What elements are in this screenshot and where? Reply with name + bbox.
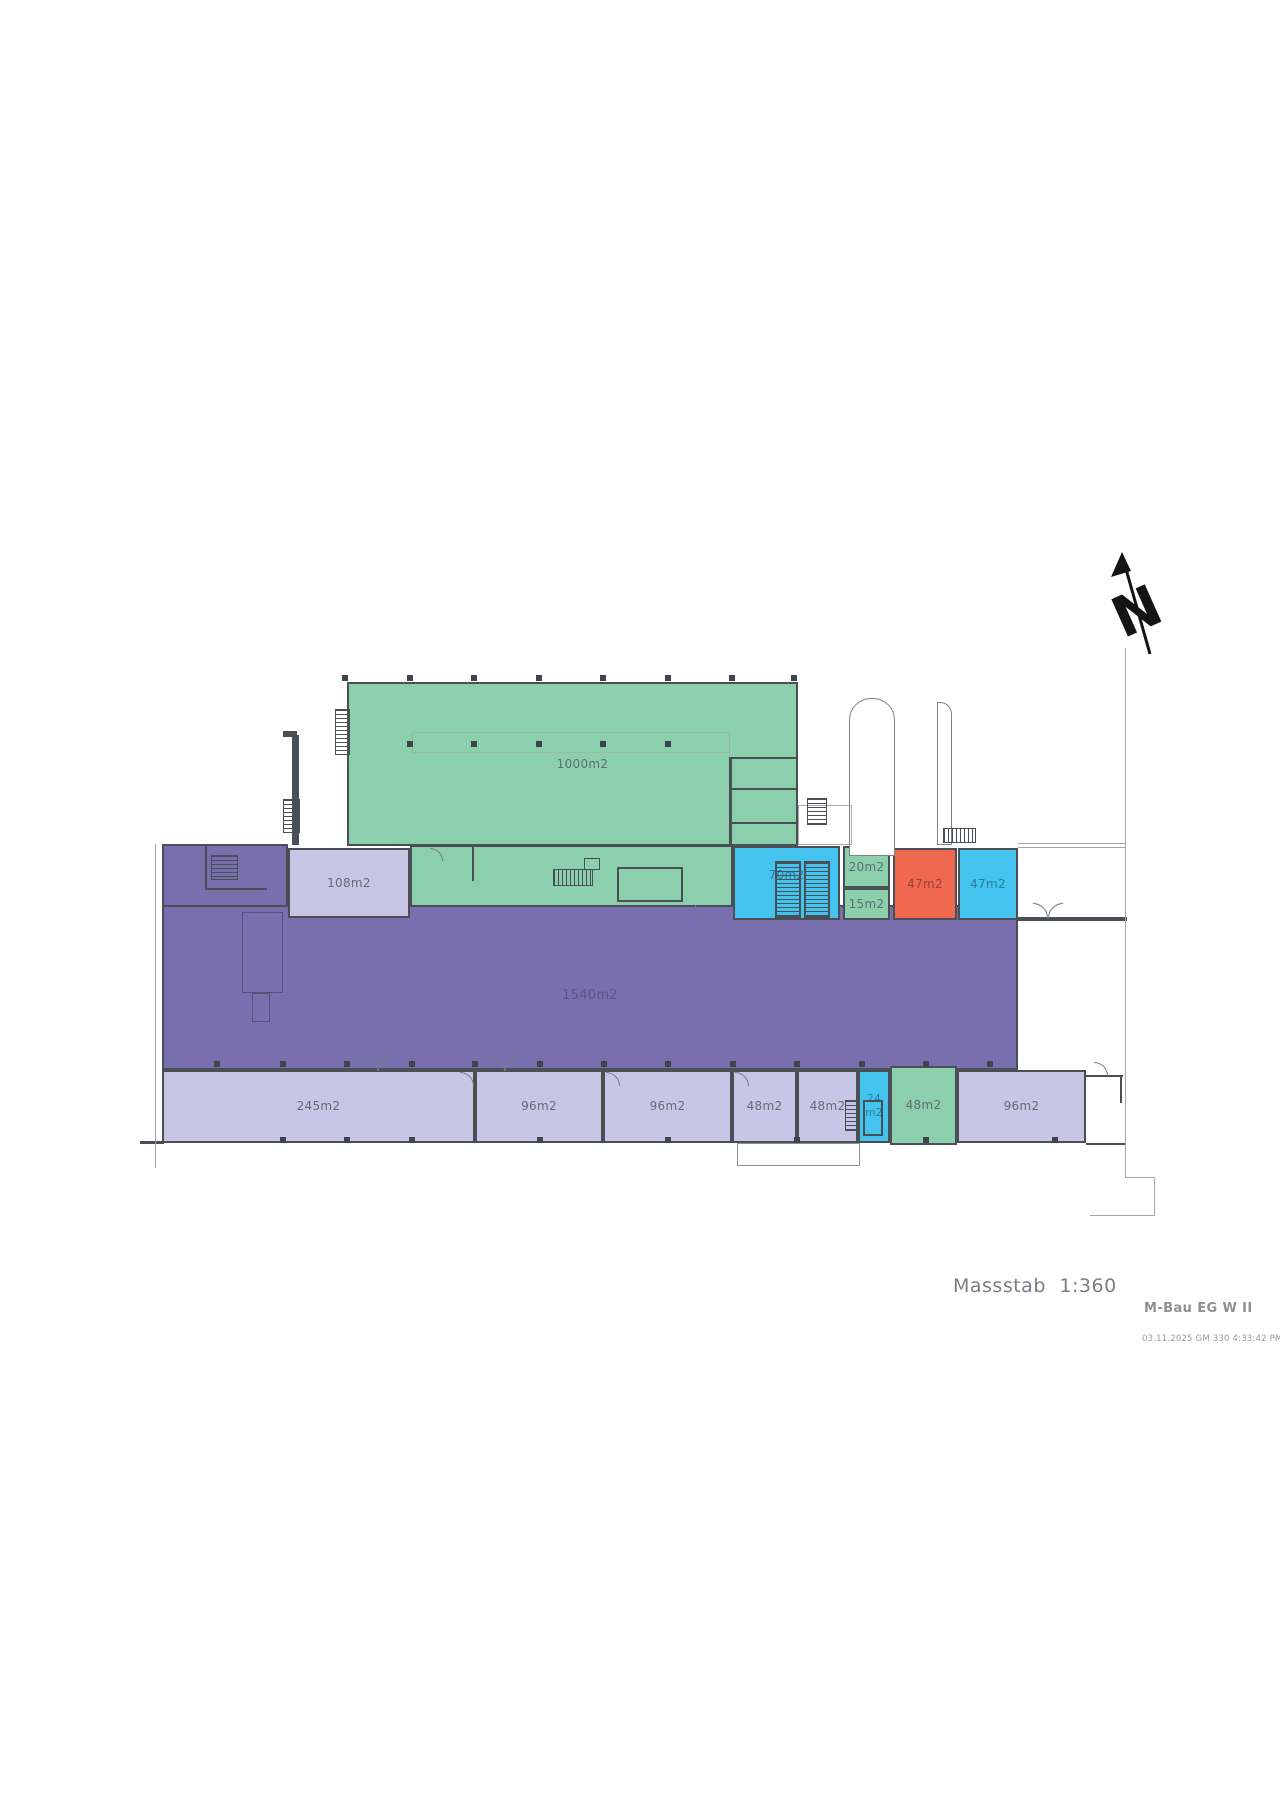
column-dot-0-4 — [600, 675, 606, 681]
scale-label: Massstab 1:360 — [953, 1275, 1117, 1297]
room-48m2-c-label: 48m2 — [906, 1098, 942, 1113]
column-dot-0-5 — [665, 675, 671, 681]
room-96m2-c-label: 96m2 — [1004, 1099, 1040, 1114]
outline-box-1 — [617, 867, 683, 902]
room-96m2-a-label: 96m2 — [521, 1099, 557, 1114]
column-dot-1-0 — [407, 741, 413, 747]
room-47m2-b: 47m2 — [958, 848, 1018, 920]
room-48m2-a-label: 48m2 — [747, 1099, 783, 1114]
thin-line-1 — [1125, 648, 1126, 1177]
wall-segment-10 — [205, 844, 207, 890]
column-dot-0-2 — [471, 675, 477, 681]
stairs-icon-3 — [804, 861, 830, 918]
thin-line-2 — [1125, 1177, 1155, 1178]
outline-box-7 — [252, 993, 270, 1022]
column-dot-1-4 — [665, 741, 671, 747]
stairs-icon-6 — [211, 855, 238, 880]
stairs-icon-4 — [807, 798, 827, 825]
column-dot-3-6 — [923, 1137, 929, 1143]
column-dot-1-3 — [600, 741, 606, 747]
room-48m2-b-label: 48m2 — [810, 1099, 846, 1114]
thin-line-4 — [1090, 1215, 1155, 1216]
outline-box-0 — [412, 732, 730, 753]
door-arc-5 — [1048, 903, 1063, 918]
room-96m2-a: 96m2 — [475, 1070, 603, 1143]
column-dot-1-1 — [471, 741, 477, 747]
room-47m2-a-label: 47m2 — [907, 877, 943, 892]
column-dot-2-7 — [665, 1061, 671, 1067]
column-dot-2-2 — [344, 1061, 350, 1067]
column-dot-2-8 — [730, 1061, 736, 1067]
column-dot-3-2 — [409, 1137, 415, 1143]
wall-segment-13 — [1086, 1143, 1125, 1145]
column-dot-2-0 — [214, 1061, 220, 1067]
room-108m2-label: 108m2 — [327, 876, 371, 891]
stairs-icon-1 — [335, 709, 350, 755]
room-15m2: 15m2 — [843, 888, 890, 920]
hall-1540m2: 1540m2 — [162, 905, 1018, 1070]
column-dot-0-3 — [536, 675, 542, 681]
outline-box-4 — [937, 702, 952, 845]
room-96m2-b-label: 96m2 — [650, 1099, 686, 1114]
stairs-icon-8 — [553, 869, 593, 886]
column-dot-2-3 — [409, 1061, 415, 1067]
column-dot-0-1 — [407, 675, 413, 681]
outline-box-6 — [242, 912, 283, 993]
room-245m2-label: 245m2 — [297, 1099, 341, 1114]
column-dot-2-6 — [601, 1061, 607, 1067]
outline-box-8 — [863, 1100, 883, 1136]
door-arc-4 — [1033, 903, 1048, 918]
room-245m2: 245m2 — [162, 1070, 475, 1143]
column-dot-3-4 — [665, 1137, 671, 1143]
door-arc-9 — [1094, 1062, 1108, 1076]
room-47m2-b-label: 47m2 — [970, 877, 1006, 892]
print-timestamp: 03.11.2025 GM 330 4:33:42 PM — [1142, 1334, 1280, 1344]
column-dot-2-4 — [472, 1061, 478, 1067]
hall-1000m2-label: 1000m2 — [557, 757, 609, 772]
stairs-icon-0 — [283, 799, 300, 833]
column-dot-2-10 — [859, 1061, 865, 1067]
stairs-icon-7 — [845, 1100, 860, 1131]
column-dot-2-9 — [794, 1061, 800, 1067]
room-96m2-b: 96m2 — [603, 1070, 732, 1143]
outline-box-3 — [849, 698, 895, 856]
column-dot-3-1 — [344, 1137, 350, 1143]
column-dot-0-6 — [729, 675, 735, 681]
room-47m2-a: 47m2 — [893, 848, 957, 920]
plan-name-label: M-Bau EG W II — [1144, 1301, 1253, 1316]
thin-line-3 — [1154, 1177, 1155, 1216]
column-dot-3-5 — [794, 1137, 800, 1143]
column-dot-3-7 — [1052, 1137, 1058, 1143]
wall-segment-8 — [729, 822, 798, 824]
stairs-icon-2 — [775, 861, 801, 918]
column-dot-3-0 — [280, 1137, 286, 1143]
wall-segment-9 — [472, 847, 474, 881]
thin-line-6 — [1018, 847, 1125, 848]
wall-segment-4 — [1120, 1075, 1122, 1103]
column-dot-2-1 — [280, 1061, 286, 1067]
column-dot-0-7 — [791, 675, 797, 681]
wall-segment-5 — [729, 757, 732, 847]
floor-plan-canvas: N Massstab 1:360 M-Bau EG W II 03.11.202… — [0, 0, 1280, 1811]
room-48m2-c: 48m2 — [890, 1066, 957, 1145]
room-96m2-c: 96m2 — [957, 1070, 1086, 1143]
room-108m2: 108m2 — [288, 848, 410, 918]
hall-1540m2-label: 1540m2 — [562, 988, 618, 1004]
room-15m2-label: 15m2 — [849, 897, 885, 912]
wall-segment-7 — [729, 788, 798, 790]
column-dot-2-11 — [923, 1061, 929, 1067]
column-dot-2-5 — [537, 1061, 543, 1067]
column-dot-0-0 — [342, 675, 348, 681]
room-20m2-label: 20m2 — [849, 860, 885, 875]
thin-line-5 — [1018, 843, 1125, 844]
column-dot-2-12 — [987, 1061, 993, 1067]
column-dot-1-2 — [536, 741, 542, 747]
column-dot-3-3 — [537, 1137, 543, 1143]
outline-box-2 — [737, 1143, 860, 1166]
wall-segment-11 — [205, 888, 267, 890]
wall-segment-1 — [283, 731, 297, 737]
thin-line-0 — [155, 844, 156, 1168]
north-arrow-icon: N — [1098, 550, 1178, 660]
stairs-icon-5 — [943, 828, 976, 843]
wall-segment-6 — [729, 757, 798, 759]
wall-segment-12 — [140, 1141, 164, 1144]
